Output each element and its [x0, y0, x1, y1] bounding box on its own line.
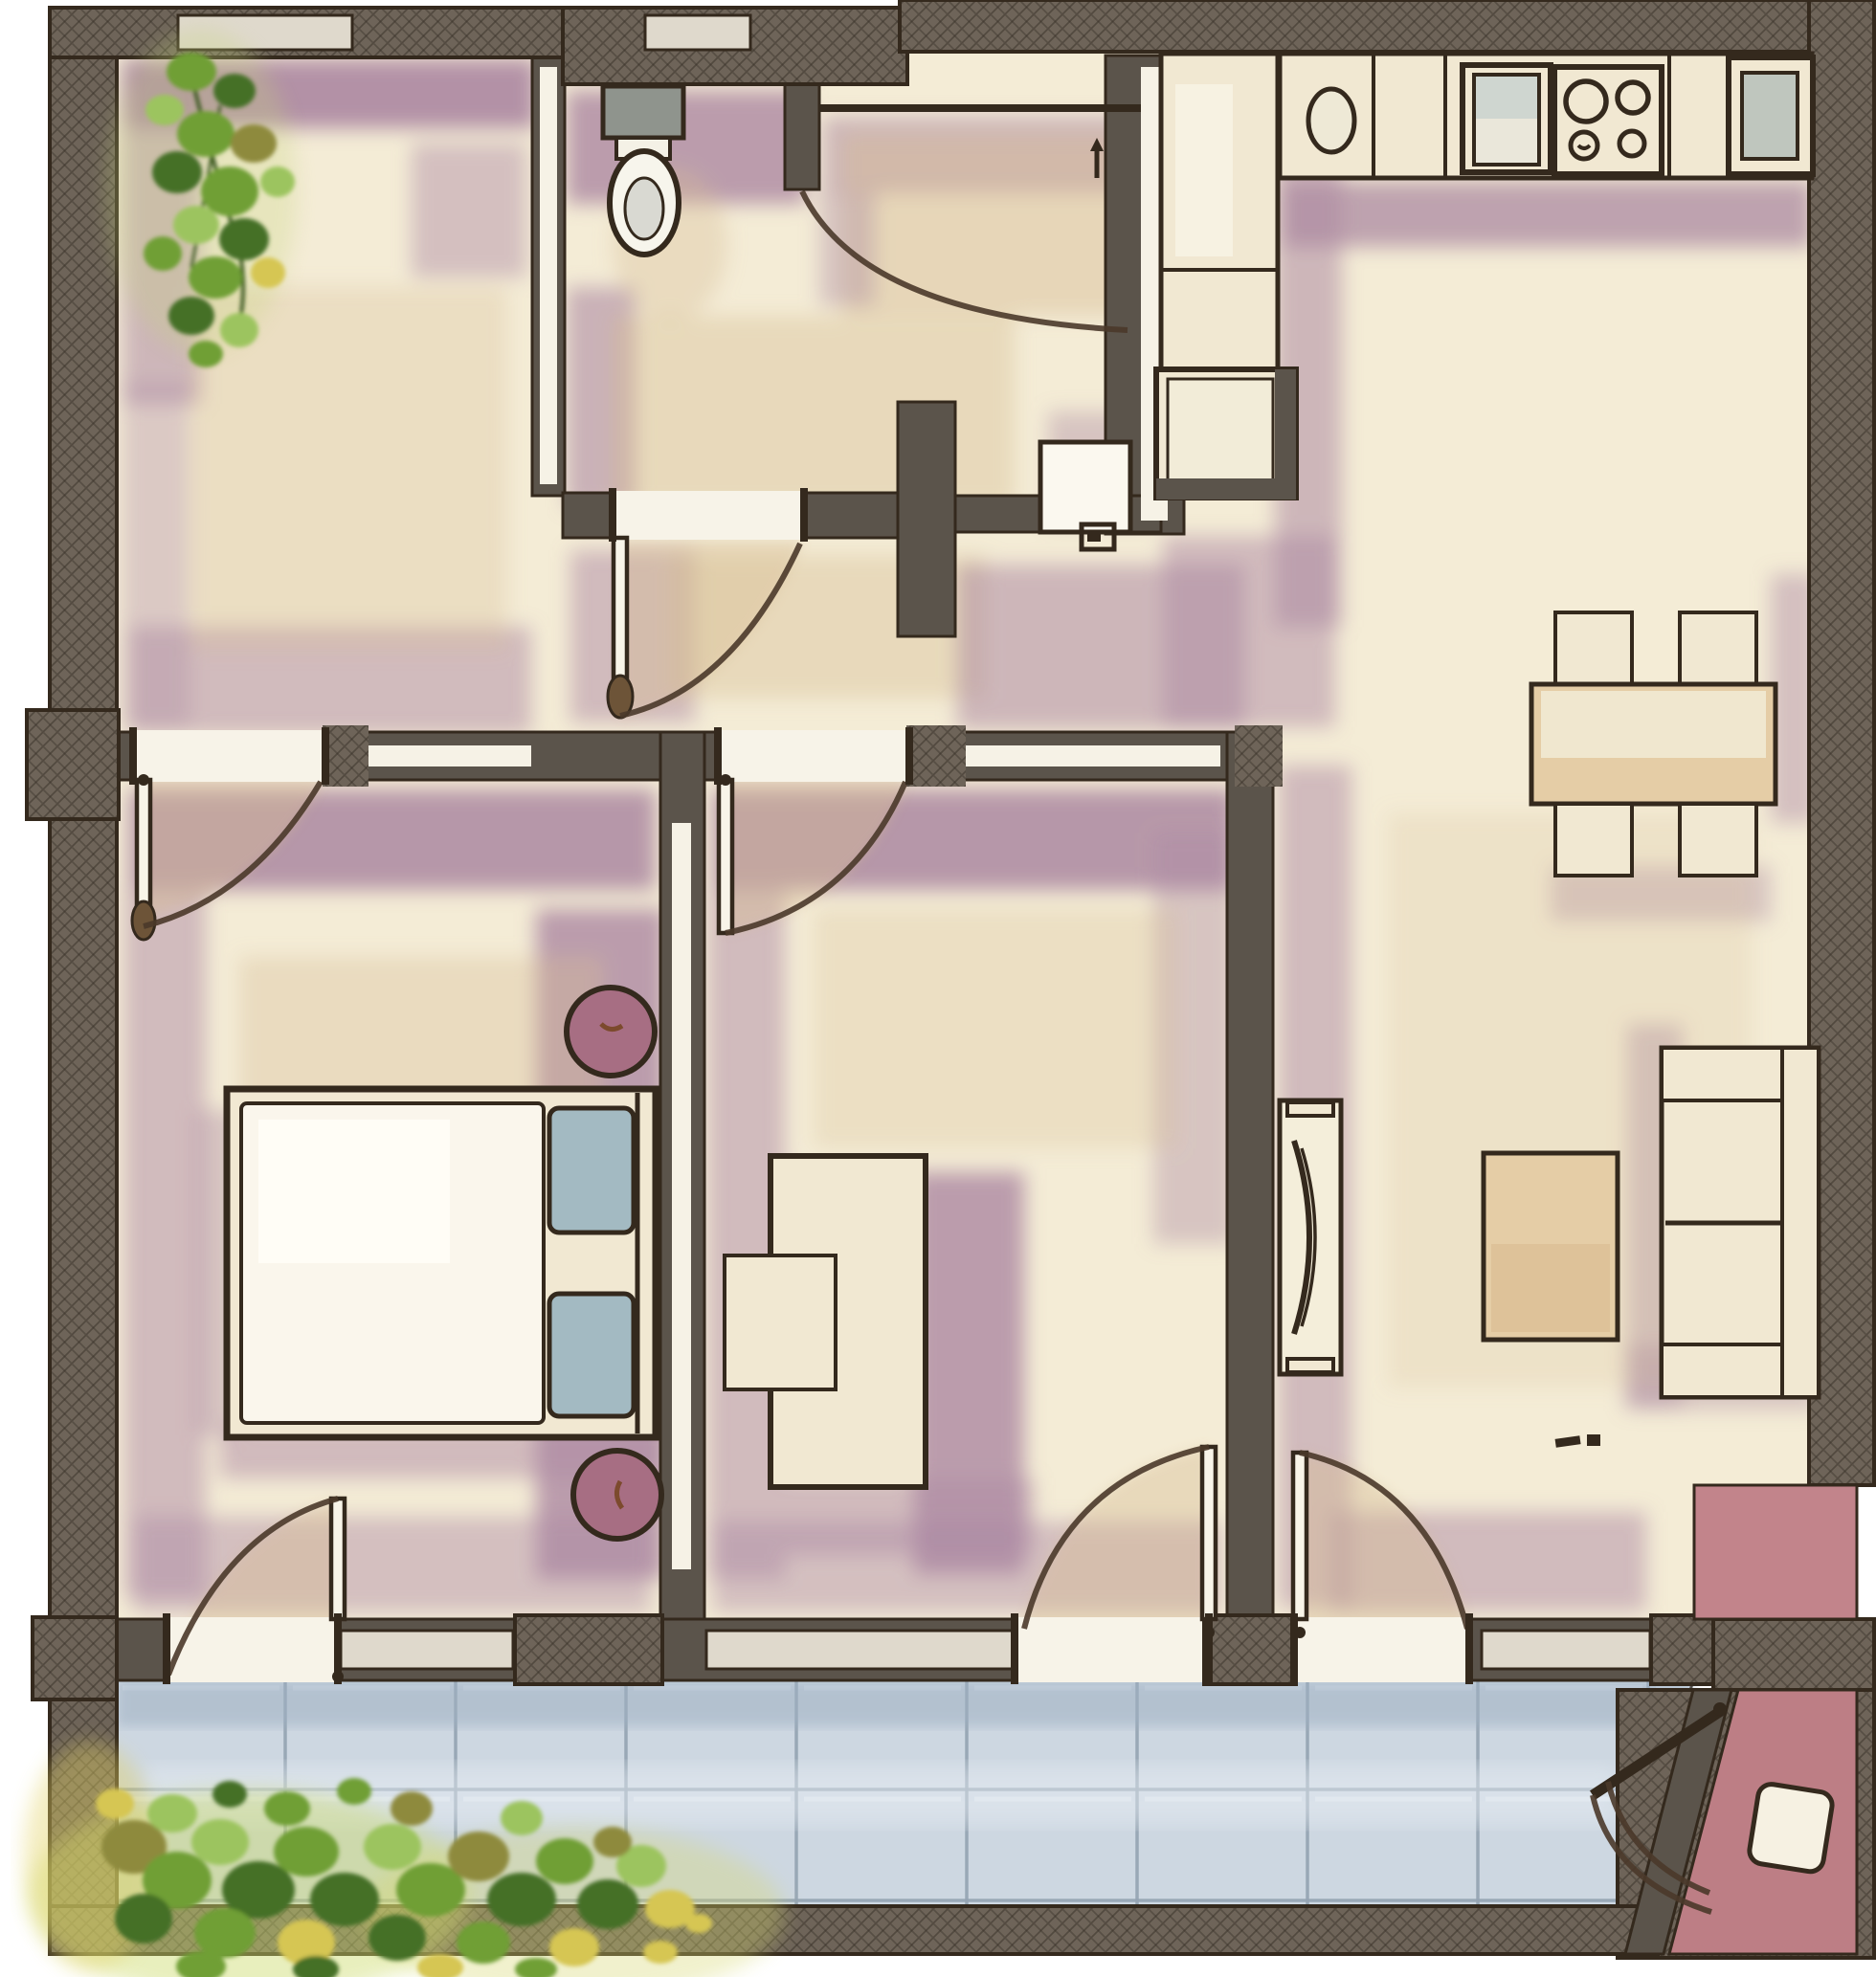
wall-bedroom2-living — [1227, 732, 1273, 1622]
bed-pillow-top — [549, 1108, 634, 1233]
floor-plan-page — [0, 0, 1876, 1977]
bed-duvet-highlight — [258, 1120, 450, 1263]
pier-bedroom2-living-south — [1204, 1615, 1296, 1684]
round-basin — [1308, 89, 1354, 152]
kitchen-lower-cabinet-inner — [1168, 379, 1273, 482]
balcony-corner-door-hinge — [1713, 1702, 1727, 1716]
washing-machine — [1040, 442, 1130, 532]
dining-chair-top-right — [1680, 612, 1756, 684]
opening-bedroom2-balcony — [1015, 1617, 1204, 1682]
window-bedroom1-balcony — [341, 1631, 513, 1669]
pilaster-west-mid — [27, 710, 119, 819]
wall-stub — [898, 402, 955, 636]
dining-chair-bottom-right — [1680, 804, 1756, 876]
sofa-backrest — [1782, 1048, 1819, 1397]
kitchen-column-highlight — [1175, 84, 1233, 256]
coffee-table-shade — [1491, 1244, 1610, 1332]
opening-bathroom — [613, 491, 804, 540]
bedroom-1-door-knob — [132, 901, 155, 940]
pier-bedroom-divider-south — [515, 1615, 662, 1684]
dining-chair-bottom-left — [1555, 804, 1632, 876]
cooktop — [1554, 67, 1662, 174]
window-north-bathroom — [645, 15, 750, 50]
dining-table-top — [1541, 691, 1766, 758]
outer-wall-north-kitchen — [900, 0, 1874, 52]
balcony-top-shadow — [117, 1680, 1693, 1726]
opening-bedroom2-entry — [718, 730, 909, 782]
window-bedroom2-balcony — [706, 1631, 1013, 1669]
sofa-armrest-top — [1662, 1048, 1784, 1100]
refrigerator-inner — [1742, 73, 1798, 159]
sofa-armrest-bottom — [1662, 1344, 1784, 1397]
pink-area-upper — [1694, 1485, 1857, 1619]
opening-bedroom1-entry — [134, 730, 325, 782]
pier-living-southeast — [1651, 1615, 1718, 1684]
desk-chair — [725, 1255, 836, 1389]
pilaster-west-balcony — [33, 1617, 117, 1699]
bed-pillow-bottom — [549, 1294, 634, 1416]
sink-basin-water — [1476, 77, 1537, 119]
corner-store-mat — [1748, 1783, 1834, 1874]
dining-chair-top-left — [1555, 612, 1632, 684]
floor-plan-drawing — [0, 0, 1876, 1977]
window-living-balcony — [1482, 1631, 1650, 1669]
toilet-tank — [603, 86, 683, 138]
toilet-bowl-inner — [625, 178, 663, 239]
opening-living-balcony — [1294, 1617, 1469, 1682]
wall-southeast-band — [1713, 1619, 1874, 1692]
